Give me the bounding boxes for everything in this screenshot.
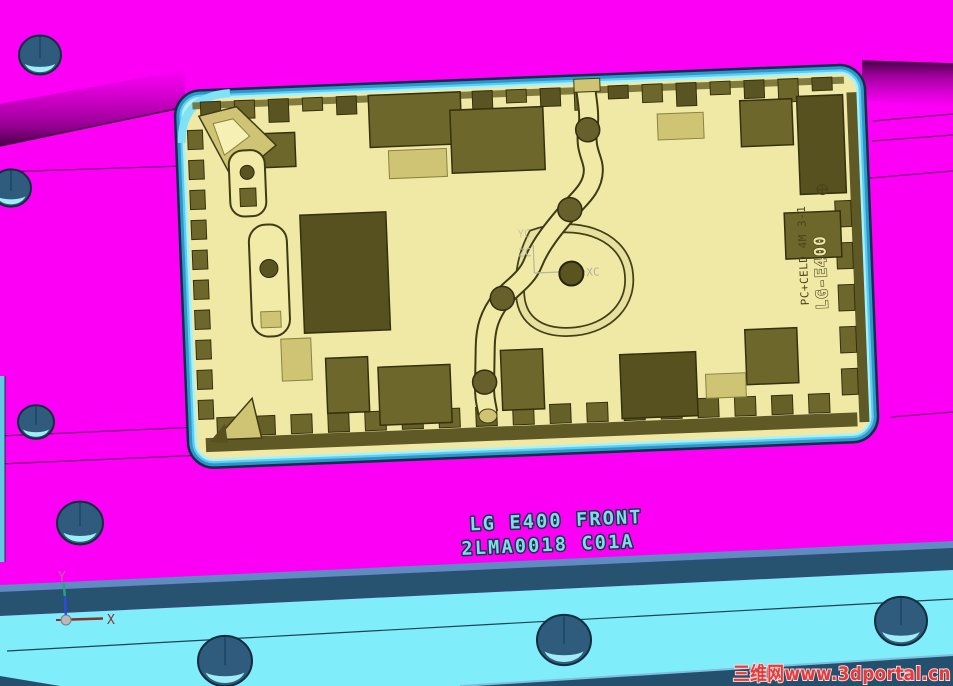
cavity-pocket bbox=[450, 107, 545, 174]
gate-hole bbox=[559, 261, 584, 286]
cavity-pocket bbox=[197, 370, 213, 390]
cavity-pocket bbox=[196, 340, 212, 360]
cavity-pocket bbox=[300, 212, 391, 333]
cad-3d-viewport[interactable]: LG E400 FRONT 2LMA0018 C01A bbox=[0, 0, 953, 686]
axis-x-label: X bbox=[107, 613, 115, 628]
cavity-pocket bbox=[506, 89, 526, 103]
cavity-pocket bbox=[608, 85, 628, 99]
cavity-pocket bbox=[291, 414, 313, 434]
left-edge-sliver bbox=[0, 376, 5, 562]
pipe-bottom-collar bbox=[479, 409, 498, 424]
marking-model: LG-E400 bbox=[810, 235, 832, 310]
cavity-pocket bbox=[734, 396, 756, 416]
cavity-pocket bbox=[191, 220, 207, 240]
cavity-pocket bbox=[302, 97, 322, 111]
plate-ridge-shadow-right bbox=[862, 61, 953, 106]
cavity-pocket bbox=[378, 364, 452, 425]
pipe-top-collar bbox=[574, 78, 600, 92]
pipe-fitting bbox=[472, 370, 497, 395]
capsule-boss bbox=[228, 150, 267, 217]
wcs-xc-label: XC bbox=[586, 265, 600, 279]
cavity-pocket bbox=[812, 77, 832, 91]
circled-plus-mark bbox=[817, 184, 827, 194]
cavity-pocket bbox=[328, 412, 350, 432]
cavity-pocket bbox=[745, 328, 799, 385]
pipe-fitting bbox=[490, 286, 515, 311]
cavity-pocket bbox=[676, 82, 697, 106]
cavity-pocket bbox=[268, 99, 289, 123]
cavity-pocket bbox=[840, 326, 857, 353]
watermark-cn: 三维网 bbox=[733, 662, 784, 685]
wcs-origin-ball bbox=[61, 615, 71, 625]
cavity-pocket bbox=[841, 368, 858, 395]
cavity-pocket bbox=[550, 404, 572, 424]
cavity-pocket bbox=[192, 250, 208, 270]
cavity-pocket bbox=[540, 88, 561, 107]
cavity-pocket bbox=[808, 393, 830, 413]
capsule-slot bbox=[240, 188, 257, 207]
wcs-zc-label: ZC bbox=[518, 246, 532, 260]
cavity-pocket bbox=[190, 190, 206, 210]
cavity-pocket bbox=[710, 81, 730, 95]
capsule-hole bbox=[260, 259, 279, 278]
cavity-pocket bbox=[797, 95, 847, 195]
capsule-slot bbox=[261, 311, 282, 328]
axis-y-label: Y bbox=[58, 570, 66, 585]
cavity-pocket bbox=[189, 160, 205, 180]
wcs-yc-label: YC bbox=[517, 227, 531, 241]
cavity-insert: YC ZC XC LG-E400 PC+CELD 4M 3-1 bbox=[180, 68, 871, 461]
watermark-url: www.3dportal.cn bbox=[784, 663, 951, 685]
cavity-pocket bbox=[771, 395, 793, 415]
cavity-step bbox=[657, 112, 704, 140]
pipe-fitting bbox=[575, 117, 600, 142]
cavity-pocket bbox=[336, 96, 357, 115]
capsule-hole bbox=[240, 165, 255, 180]
watermark: 三维网www.3dportal.cn bbox=[733, 662, 951, 685]
cavity-pocket bbox=[838, 284, 855, 311]
pipe-fitting bbox=[557, 197, 582, 222]
cavity-step bbox=[281, 338, 313, 381]
cad-scene: LG E400 FRONT 2LMA0018 C01A bbox=[0, 0, 953, 686]
cavity-pocket bbox=[193, 280, 209, 300]
cavity-pocket bbox=[697, 398, 719, 418]
cavity-pocket bbox=[368, 92, 462, 148]
cavity-pocket bbox=[620, 352, 698, 419]
cavity-step bbox=[388, 148, 447, 178]
cavity-pocket bbox=[195, 310, 211, 330]
cavity-pocket bbox=[744, 80, 765, 99]
cavity-pocket bbox=[642, 84, 663, 103]
cavity-pocket bbox=[587, 402, 609, 422]
axis-x-line bbox=[71, 619, 103, 620]
cavity-pocket bbox=[326, 357, 370, 414]
cavity-step bbox=[705, 373, 746, 399]
cavity-pocket bbox=[187, 130, 203, 150]
cavity-pocket bbox=[740, 99, 794, 147]
cavity-pocket bbox=[198, 400, 214, 420]
cavity-pocket bbox=[500, 349, 544, 411]
